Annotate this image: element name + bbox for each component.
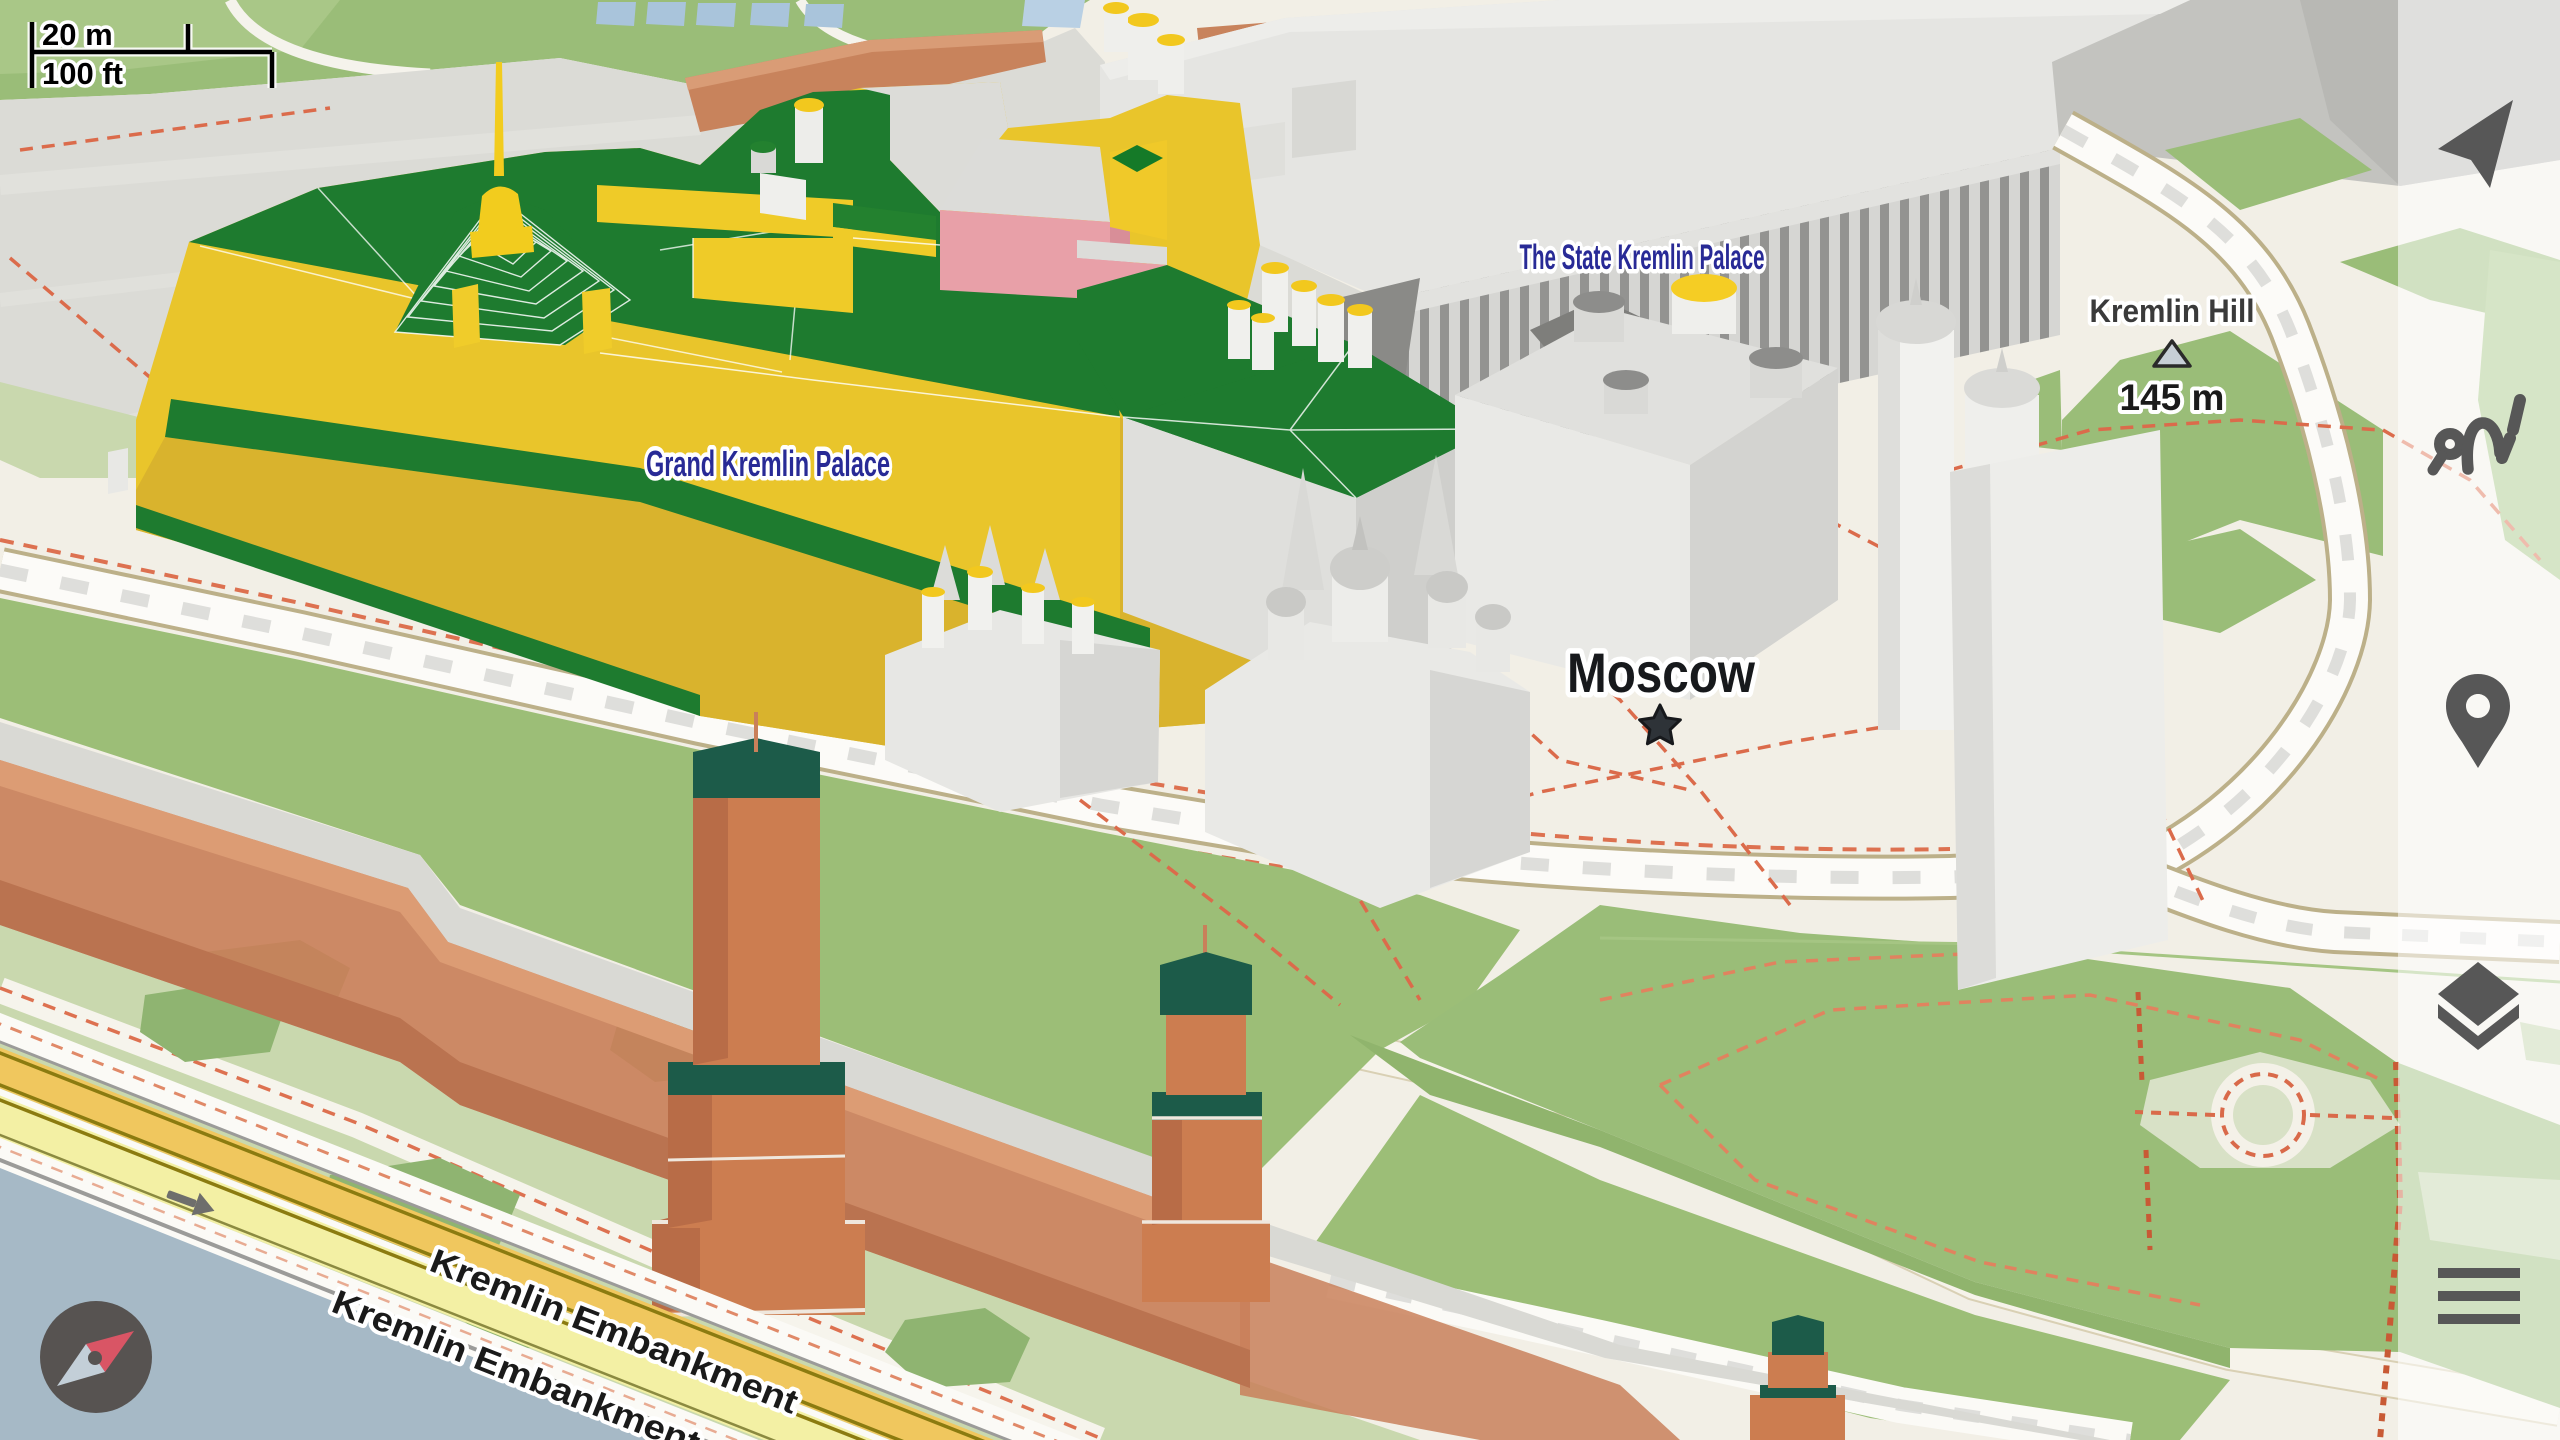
svg-text:20 m: 20 m: [42, 17, 113, 52]
svg-text:Moscow: Moscow: [1567, 641, 1755, 704]
svg-text:100 ft: 100 ft: [42, 56, 123, 91]
svg-text:The State Kremlin Palace: The State Kremlin Palace: [1520, 238, 1765, 277]
svg-text:Grand Kremlin Palace: Grand Kremlin Palace: [646, 443, 890, 484]
svg-text:Kremlin Hill: Kremlin Hill: [2090, 293, 2255, 329]
svg-text:145 m: 145 m: [2120, 377, 2225, 418]
